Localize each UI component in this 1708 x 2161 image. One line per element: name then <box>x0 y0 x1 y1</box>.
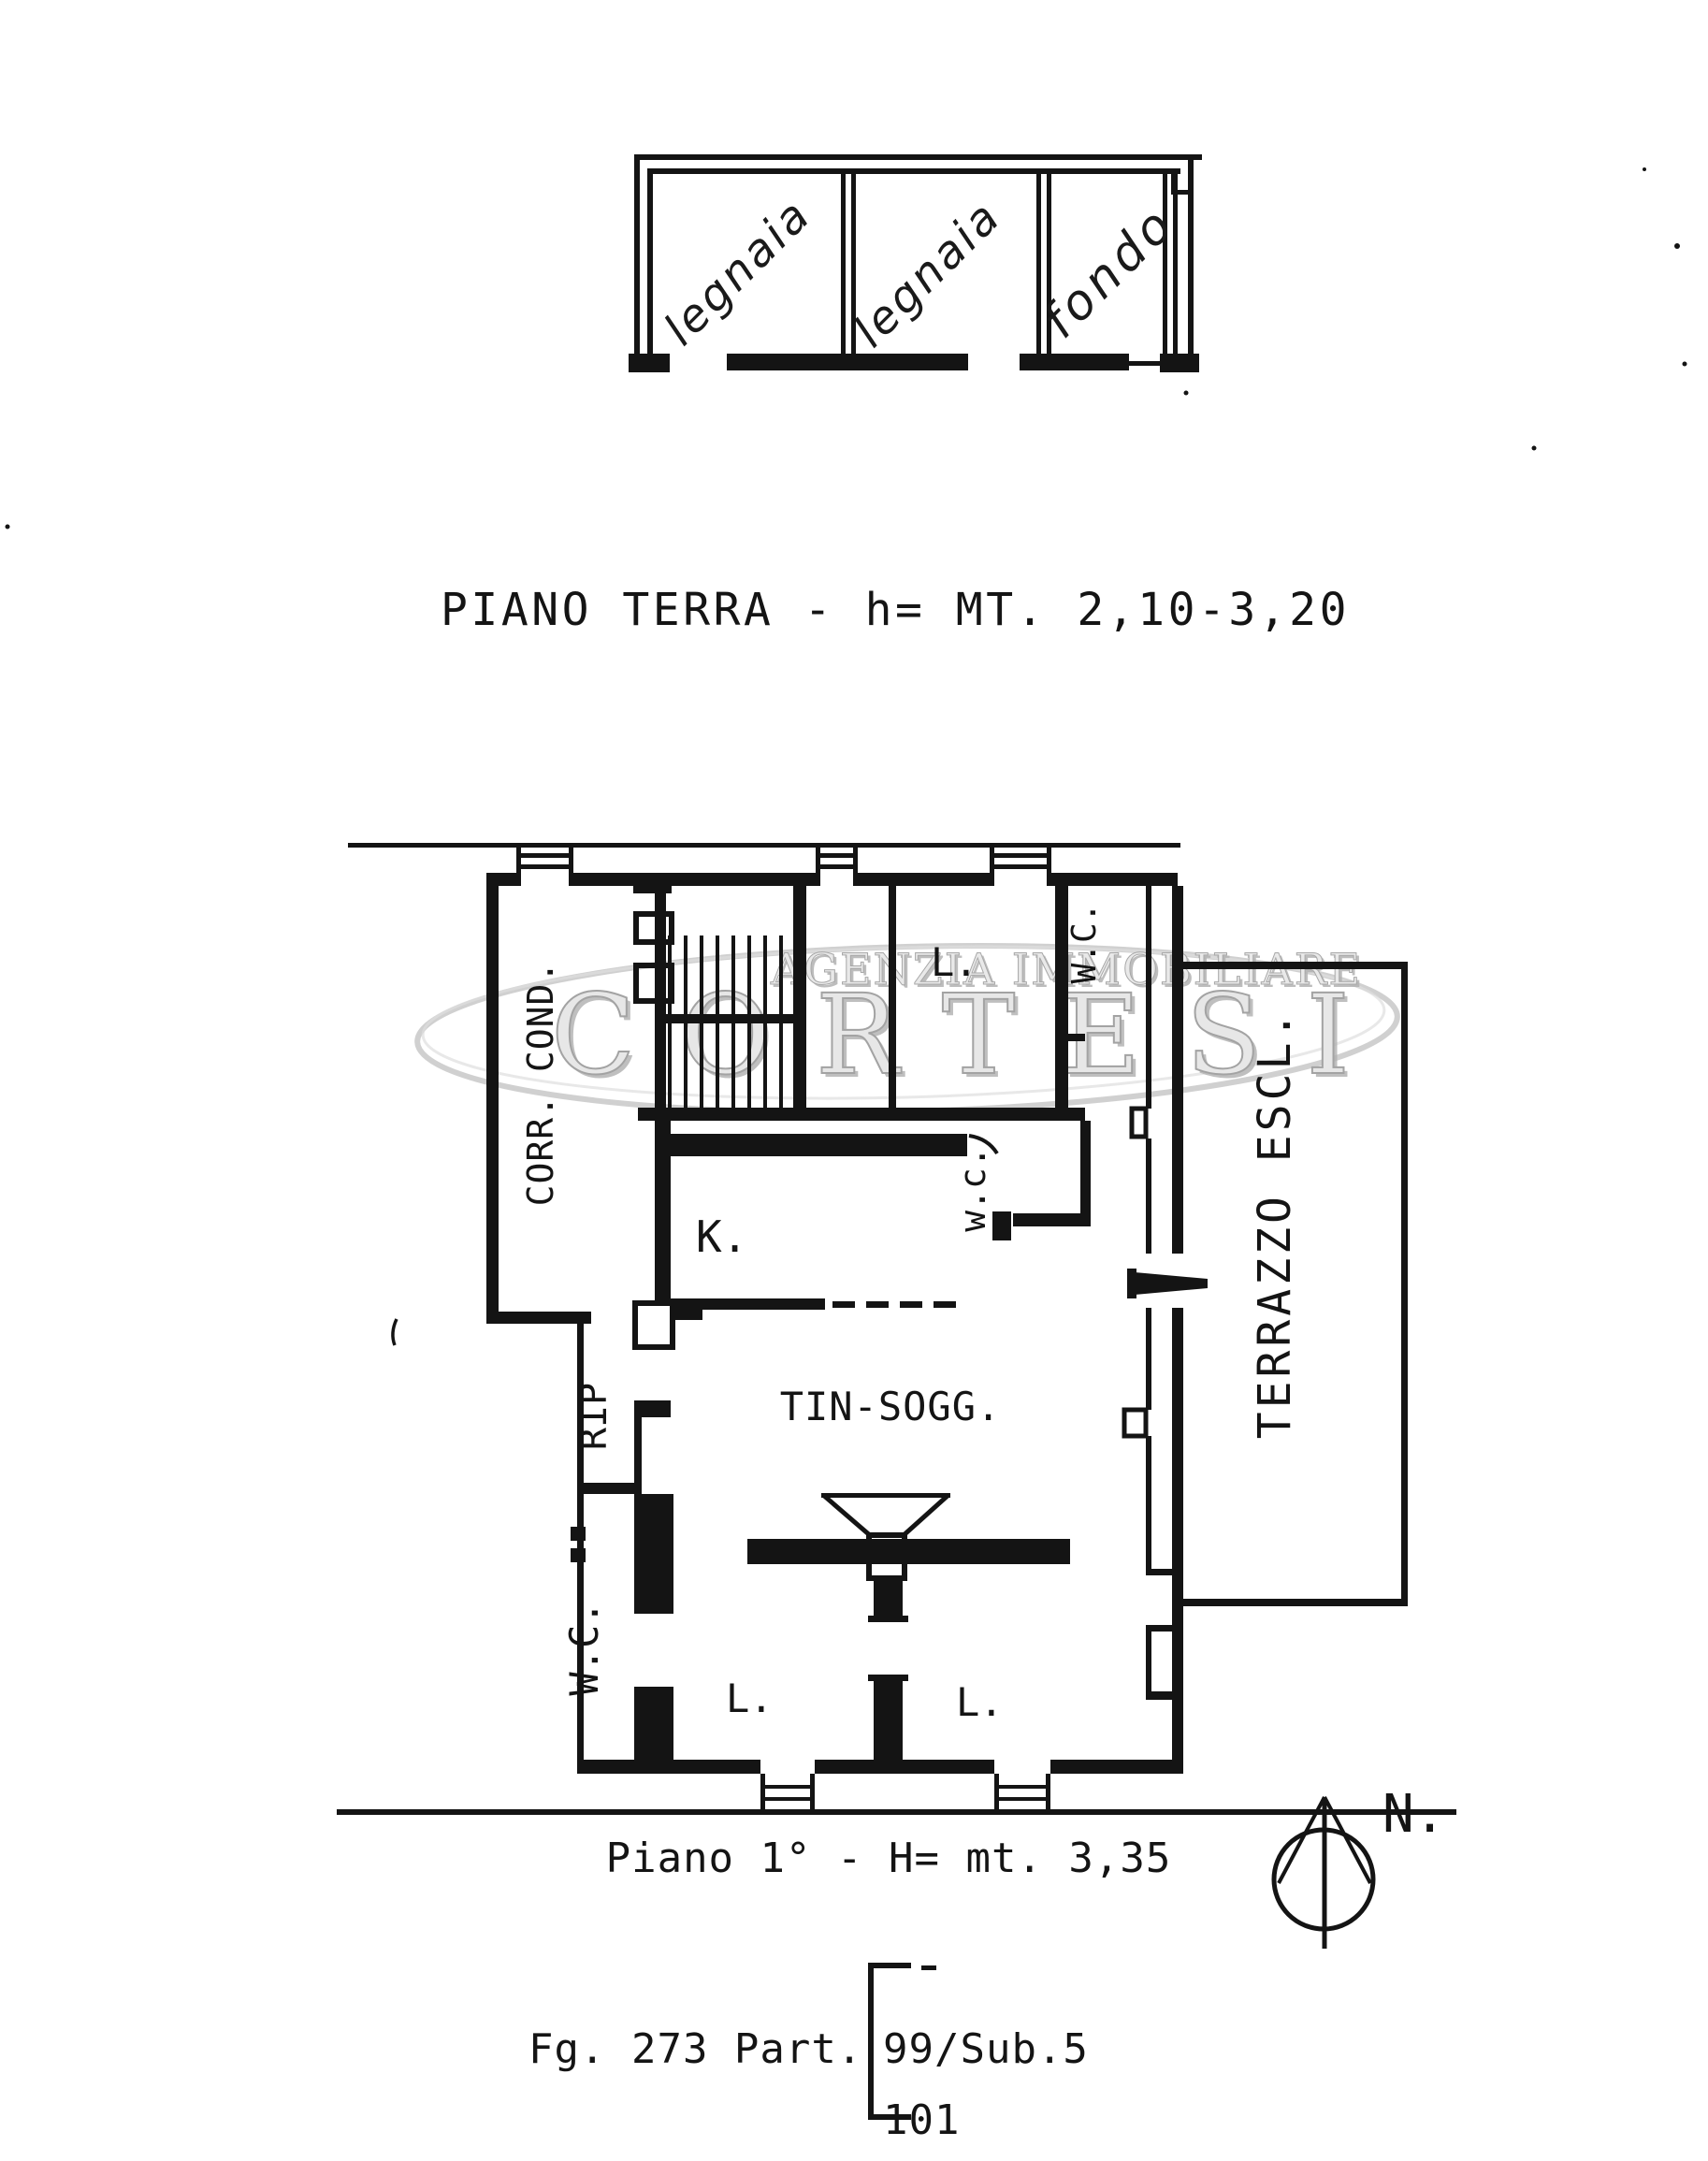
cadastral-parcel: 101 <box>883 2096 960 2144</box>
room-label-wc-mid: w.c. <box>952 1146 993 1232</box>
scanned-floorplan-page: AGENZIA IMMOBILIARE AGENZIA IMMOBILIARE … <box>0 0 1708 2161</box>
room-label-kitchen: K. <box>696 1211 747 1262</box>
north-label: N. <box>1382 1784 1445 1845</box>
ground-floor-plan: legnaia legnaia fondo <box>629 154 1202 396</box>
cadastral-sheet: Fg. 273 Part. <box>528 2025 862 2073</box>
floorplan-drawing: AGENZIA IMMOBILIARE AGENZIA IMMOBILIARE … <box>0 0 1708 2161</box>
room-label-legnaia-1: legnaia <box>654 188 821 355</box>
room-label-living: TIN-SOGG. <box>780 1384 1002 1429</box>
cadastral-sub: 99/Sub.5 <box>883 2025 1089 2073</box>
room-label-corridor: CORR. COND. <box>520 961 561 1207</box>
ground-floor-caption: PIANO TERRA - h= MT. 2,10-3,20 <box>441 584 1350 636</box>
room-label-legnaia-2: legnaia <box>844 190 1011 357</box>
room-label-storage: RIP <box>572 1383 615 1450</box>
room-label-bedroom-right: L. <box>956 1679 1004 1725</box>
bracket-icon <box>868 1963 874 2120</box>
room-label-wc-bottom: W.C. <box>561 1601 607 1695</box>
room-label-bedroom-top: L. <box>931 939 978 985</box>
north-compass: N. <box>1274 1784 1445 1949</box>
room-label-terrace: TERRAZZO ESCL. <box>1249 1008 1301 1440</box>
room-label-bedroom-left: L. <box>726 1675 774 1721</box>
scan-specks <box>6 167 1687 1345</box>
room-label-wc-top: W.C. <box>1065 903 1104 984</box>
first-floor-caption: Piano 1° - H= mt. 3,35 <box>606 1835 1172 1882</box>
cadastral-reference: Fg. 273 Part. 99/Sub.5 101 <box>528 1963 1089 2144</box>
